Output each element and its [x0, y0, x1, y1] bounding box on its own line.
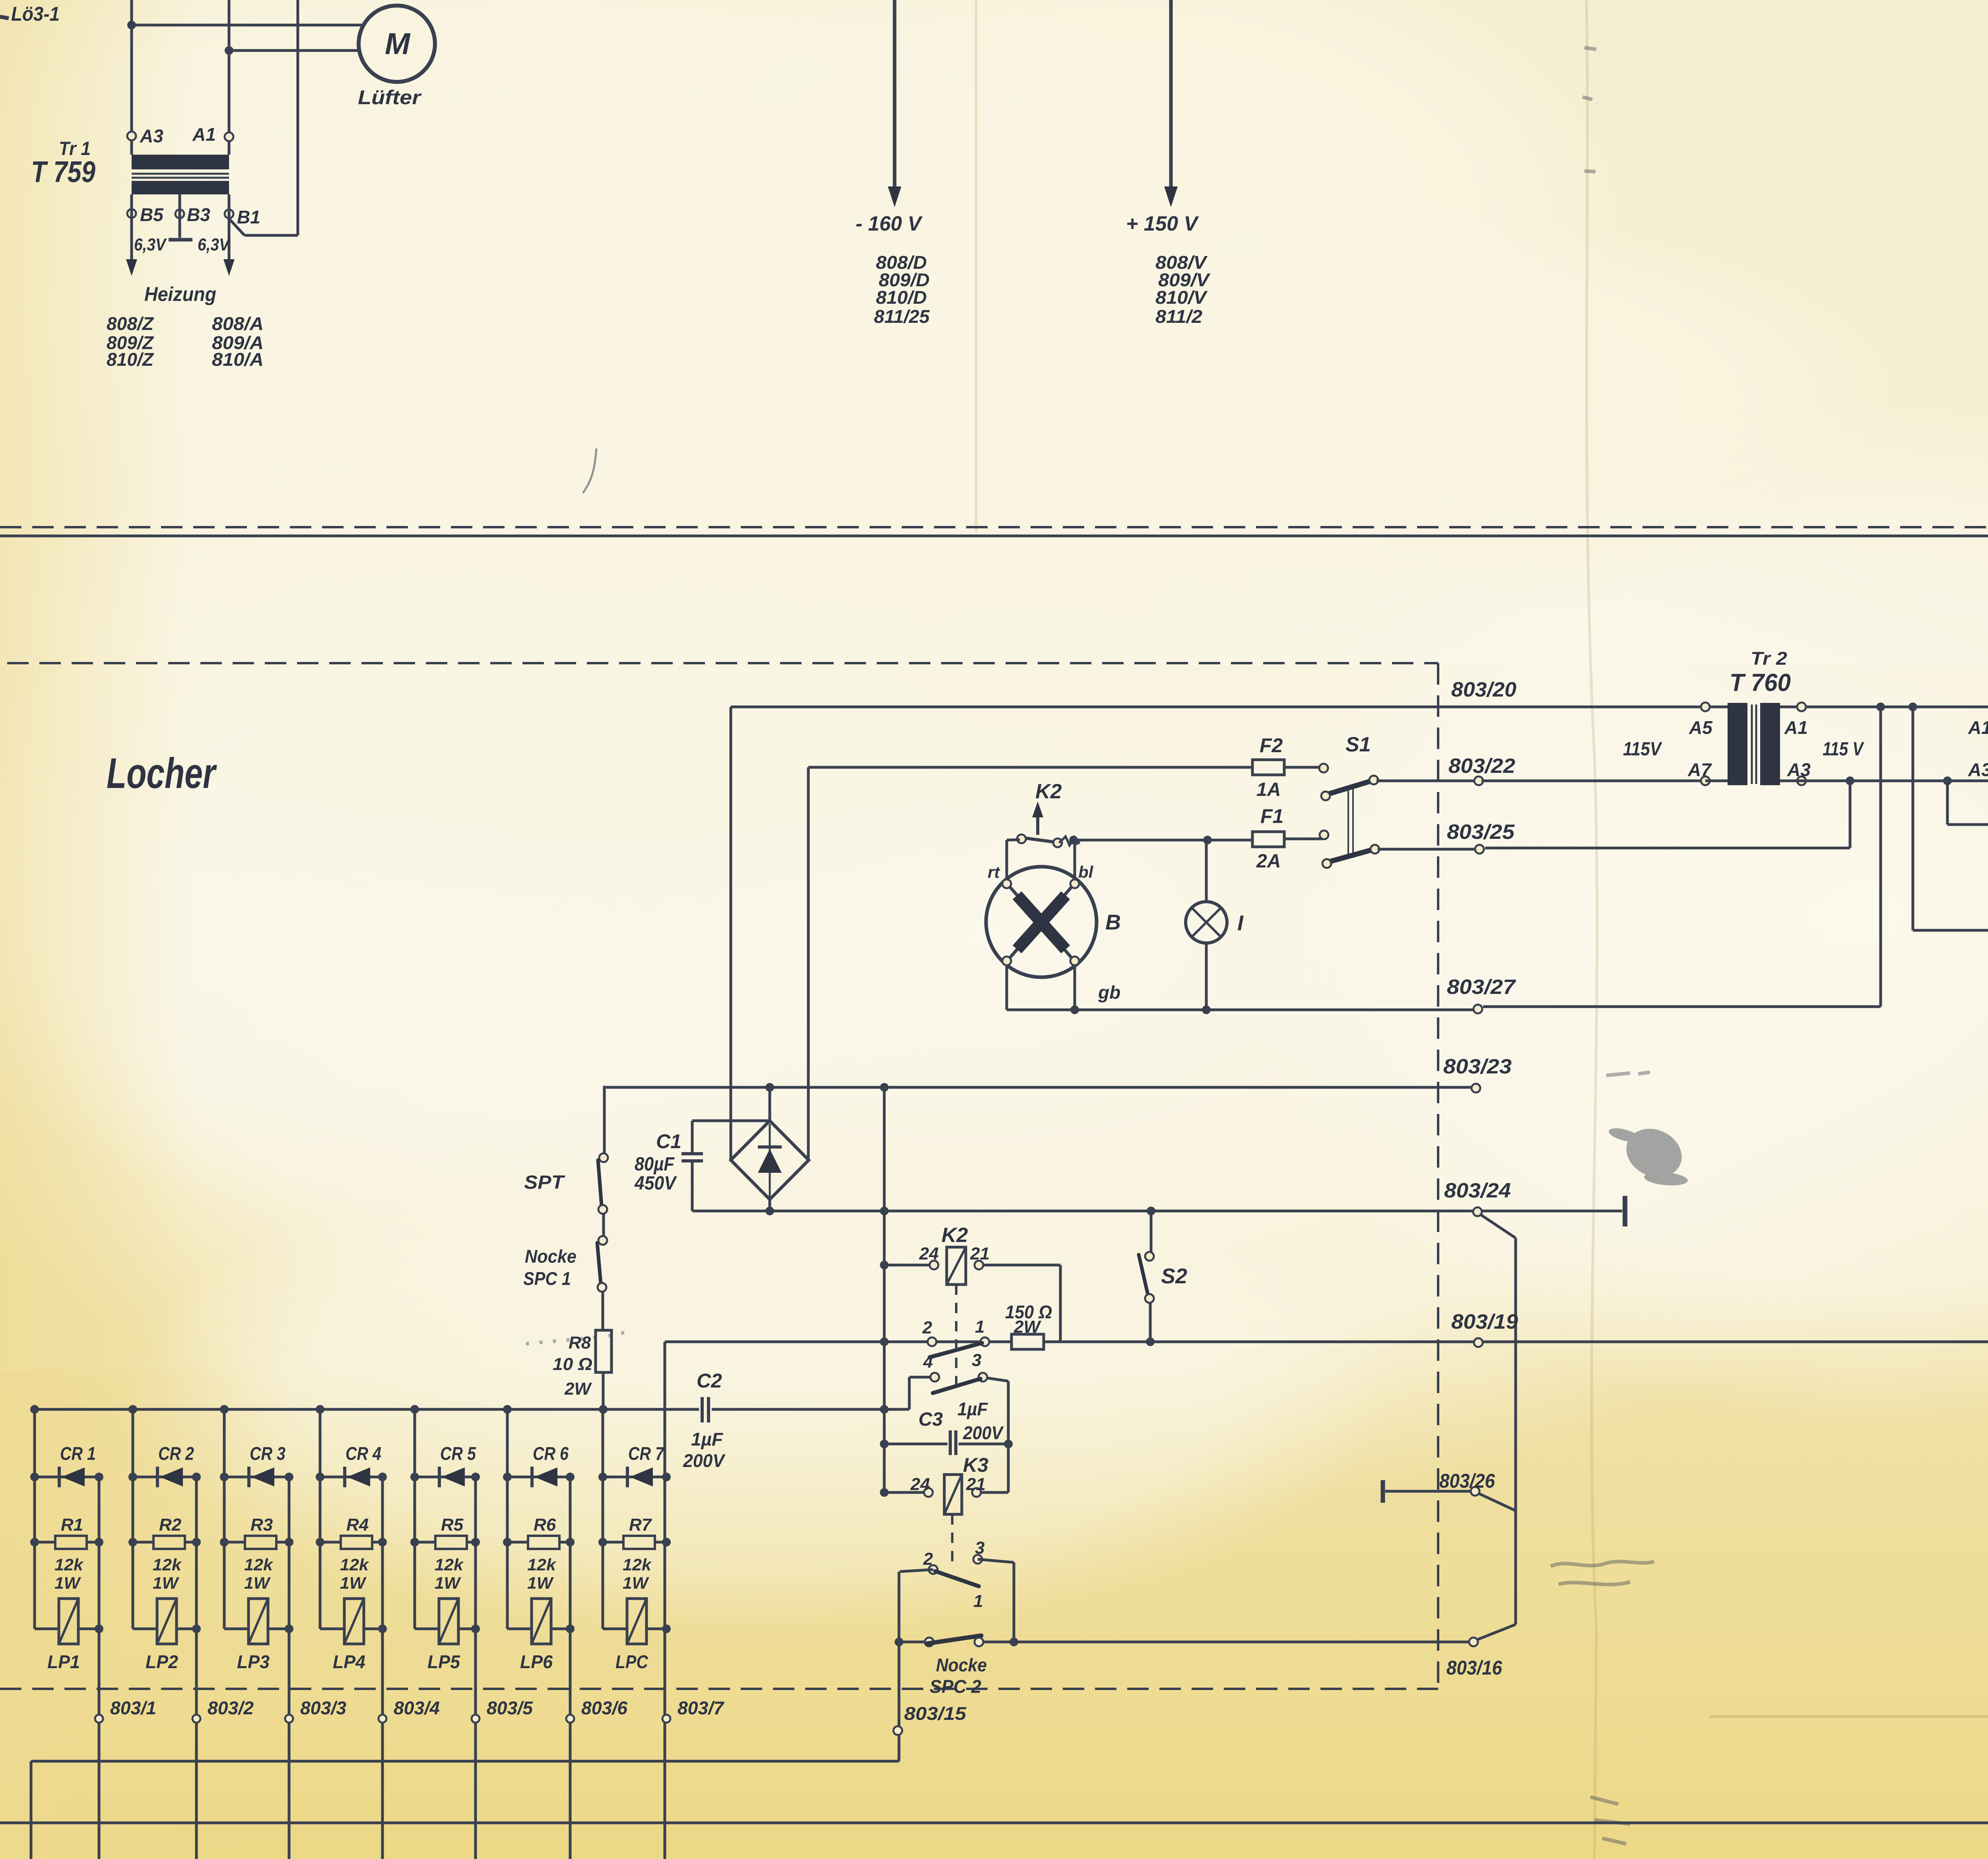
svg-text:A3: A3 [140, 126, 163, 146]
svg-text:bl: bl [1078, 863, 1094, 881]
svg-text:R2: R2 [159, 1515, 182, 1535]
svg-text:Lüfter: Lüfter [358, 86, 422, 109]
svg-text:A1: A1 [1784, 717, 1808, 738]
svg-text:21: 21 [966, 1475, 986, 1494]
svg-text:C1: C1 [656, 1130, 681, 1153]
svg-text:810/Z: 810/Z [107, 349, 154, 370]
svg-text:1µF: 1µF [691, 1429, 724, 1450]
svg-text:A5: A5 [1689, 717, 1713, 738]
svg-text:12k: 12k [623, 1555, 652, 1574]
svg-text:+ 150 V: + 150 V [1126, 212, 1199, 235]
svg-text:803/1: 803/1 [110, 1698, 156, 1718]
svg-text:10 Ω: 10 Ω [553, 1354, 592, 1374]
svg-text:Nocke: Nocke [525, 1246, 577, 1267]
svg-text:811/25: 811/25 [874, 306, 930, 327]
svg-text:S1: S1 [1345, 733, 1371, 756]
svg-text:M: M [385, 27, 411, 61]
svg-text:T 760: T 760 [1730, 669, 1791, 697]
svg-text:6,3V: 6,3V [198, 235, 231, 254]
svg-text:R6: R6 [534, 1515, 556, 1535]
svg-text:K2: K2 [1035, 780, 1062, 803]
svg-text:115 V: 115 V [1823, 739, 1864, 760]
svg-text:6,3V: 6,3V [134, 235, 167, 254]
svg-text:810/V: 810/V [1155, 287, 1208, 308]
svg-text:B3: B3 [187, 204, 210, 225]
svg-text:CR 2: CR 2 [158, 1443, 194, 1464]
svg-text:803/3: 803/3 [300, 1698, 346, 1718]
svg-text:A1: A1 [1968, 717, 1988, 738]
svg-text:803/24: 803/24 [1444, 1179, 1511, 1202]
svg-text:F2: F2 [1260, 734, 1283, 757]
svg-text:LP2: LP2 [146, 1651, 178, 1672]
svg-text:C2: C2 [697, 1370, 722, 1392]
svg-text:CR 7: CR 7 [628, 1443, 665, 1464]
svg-text:LP5: LP5 [427, 1651, 460, 1672]
svg-text:810/D: 810/D [876, 287, 927, 308]
svg-text:S2: S2 [1161, 1264, 1187, 1288]
svg-text:811/2: 811/2 [1155, 306, 1202, 327]
svg-text:C3: C3 [918, 1409, 943, 1430]
svg-text:CR 3: CR 3 [250, 1443, 285, 1464]
svg-text:3: 3 [975, 1538, 984, 1558]
svg-text:2W: 2W [1013, 1317, 1041, 1337]
svg-text:2W: 2W [564, 1379, 592, 1399]
svg-text:803/5: 803/5 [487, 1698, 533, 1718]
svg-text:LPC: LPC [615, 1651, 648, 1672]
svg-text:803/26: 803/26 [1439, 1470, 1495, 1492]
svg-text:24: 24 [910, 1475, 930, 1494]
svg-text:12k: 12k [153, 1555, 182, 1574]
svg-text:1W: 1W [54, 1574, 81, 1592]
svg-text:2: 2 [922, 1318, 932, 1337]
svg-text:K3: K3 [963, 1454, 988, 1476]
svg-text:1W: 1W [340, 1574, 367, 1592]
svg-text:T 759: T 759 [31, 155, 95, 188]
svg-text:Lö3-1: Lö3-1 [11, 3, 60, 25]
svg-text:803/6: 803/6 [581, 1698, 627, 1718]
svg-text:1W: 1W [623, 1574, 649, 1592]
svg-text:I: I [1237, 911, 1244, 935]
svg-text:A1: A1 [192, 124, 216, 145]
svg-text:Heizung: Heizung [144, 283, 216, 305]
svg-text:LP3: LP3 [237, 1651, 270, 1672]
svg-text:80µF: 80µF [635, 1154, 675, 1175]
svg-text:12k: 12k [527, 1555, 557, 1574]
svg-text:2A: 2A [1256, 851, 1281, 872]
svg-text:LP1: LP1 [47, 1651, 80, 1672]
svg-text:A3: A3 [1787, 759, 1811, 780]
svg-text:LP4: LP4 [333, 1651, 365, 1672]
svg-text:12k: 12k [435, 1555, 464, 1574]
svg-text:803/2: 803/2 [208, 1698, 254, 1718]
svg-text:R8: R8 [569, 1333, 591, 1353]
svg-text:200V: 200V [963, 1422, 1004, 1443]
svg-text:200V: 200V [683, 1450, 726, 1471]
svg-text:803/27: 803/27 [1447, 976, 1516, 999]
svg-text:803/16: 803/16 [1446, 1657, 1503, 1679]
svg-text:gb: gb [1098, 982, 1120, 1003]
svg-text:803/25: 803/25 [1447, 821, 1515, 844]
svg-text:1W: 1W [435, 1574, 461, 1592]
svg-text:B: B [1105, 910, 1121, 934]
svg-text:R7: R7 [629, 1515, 652, 1535]
svg-text:B5: B5 [140, 204, 164, 225]
svg-text:808/Z: 808/Z [107, 313, 154, 334]
svg-text:R5: R5 [441, 1515, 464, 1535]
svg-text:21: 21 [970, 1244, 990, 1263]
svg-text:CR 5: CR 5 [440, 1443, 476, 1464]
svg-text:4: 4 [923, 1352, 933, 1372]
svg-text:3: 3 [972, 1351, 981, 1370]
svg-text:808/A: 808/A [212, 313, 264, 334]
svg-text:B1: B1 [237, 207, 260, 227]
svg-text:1: 1 [975, 1317, 984, 1337]
svg-text:803/22: 803/22 [1448, 755, 1515, 778]
svg-text:CR 1: CR 1 [60, 1443, 96, 1464]
svg-text:1W: 1W [527, 1574, 554, 1592]
svg-text:1W: 1W [244, 1574, 271, 1592]
svg-text:1W: 1W [153, 1574, 179, 1592]
svg-text:CR 4: CR 4 [346, 1443, 381, 1464]
svg-text:- 160 V: - 160 V [856, 212, 923, 235]
svg-text:K2: K2 [942, 1224, 968, 1247]
svg-text:Nocke: Nocke [936, 1655, 987, 1675]
svg-text:810/A: 810/A [212, 349, 264, 370]
svg-text:1µF: 1µF [957, 1399, 988, 1419]
svg-text:803/7: 803/7 [678, 1698, 724, 1718]
svg-text:803/19: 803/19 [1451, 1310, 1518, 1333]
svg-text:2: 2 [923, 1549, 933, 1569]
svg-text:A3: A3 [1968, 759, 1988, 780]
svg-text:803/23: 803/23 [1443, 1055, 1512, 1078]
svg-text:1A: 1A [1256, 779, 1281, 800]
svg-text:Tr 2: Tr 2 [1751, 648, 1787, 669]
svg-text:R1: R1 [61, 1515, 83, 1535]
svg-text:SPC 2: SPC 2 [930, 1676, 981, 1697]
svg-text:1: 1 [973, 1591, 983, 1611]
svg-text:Locher: Locher [107, 749, 217, 797]
svg-text:24: 24 [919, 1244, 939, 1263]
svg-text:12k: 12k [54, 1555, 84, 1574]
svg-text:803/15: 803/15 [904, 1703, 967, 1724]
svg-text:803/4: 803/4 [394, 1698, 440, 1718]
svg-text:115V: 115V [1623, 739, 1663, 760]
svg-text:R4: R4 [346, 1515, 369, 1535]
svg-text:F1: F1 [1260, 805, 1283, 827]
svg-text:SPT: SPT [524, 1172, 565, 1193]
svg-text:LP6: LP6 [520, 1651, 553, 1672]
svg-text:12k: 12k [244, 1555, 274, 1574]
svg-text:SPC 1: SPC 1 [523, 1268, 571, 1289]
svg-text:R3: R3 [250, 1515, 273, 1535]
svg-text:rt: rt [988, 863, 1000, 881]
svg-text:A7: A7 [1687, 759, 1712, 780]
svg-text:803/20: 803/20 [1451, 678, 1516, 701]
svg-text:CR 6: CR 6 [533, 1443, 569, 1464]
svg-text:12k: 12k [340, 1555, 370, 1574]
svg-text:450V: 450V [634, 1173, 678, 1194]
